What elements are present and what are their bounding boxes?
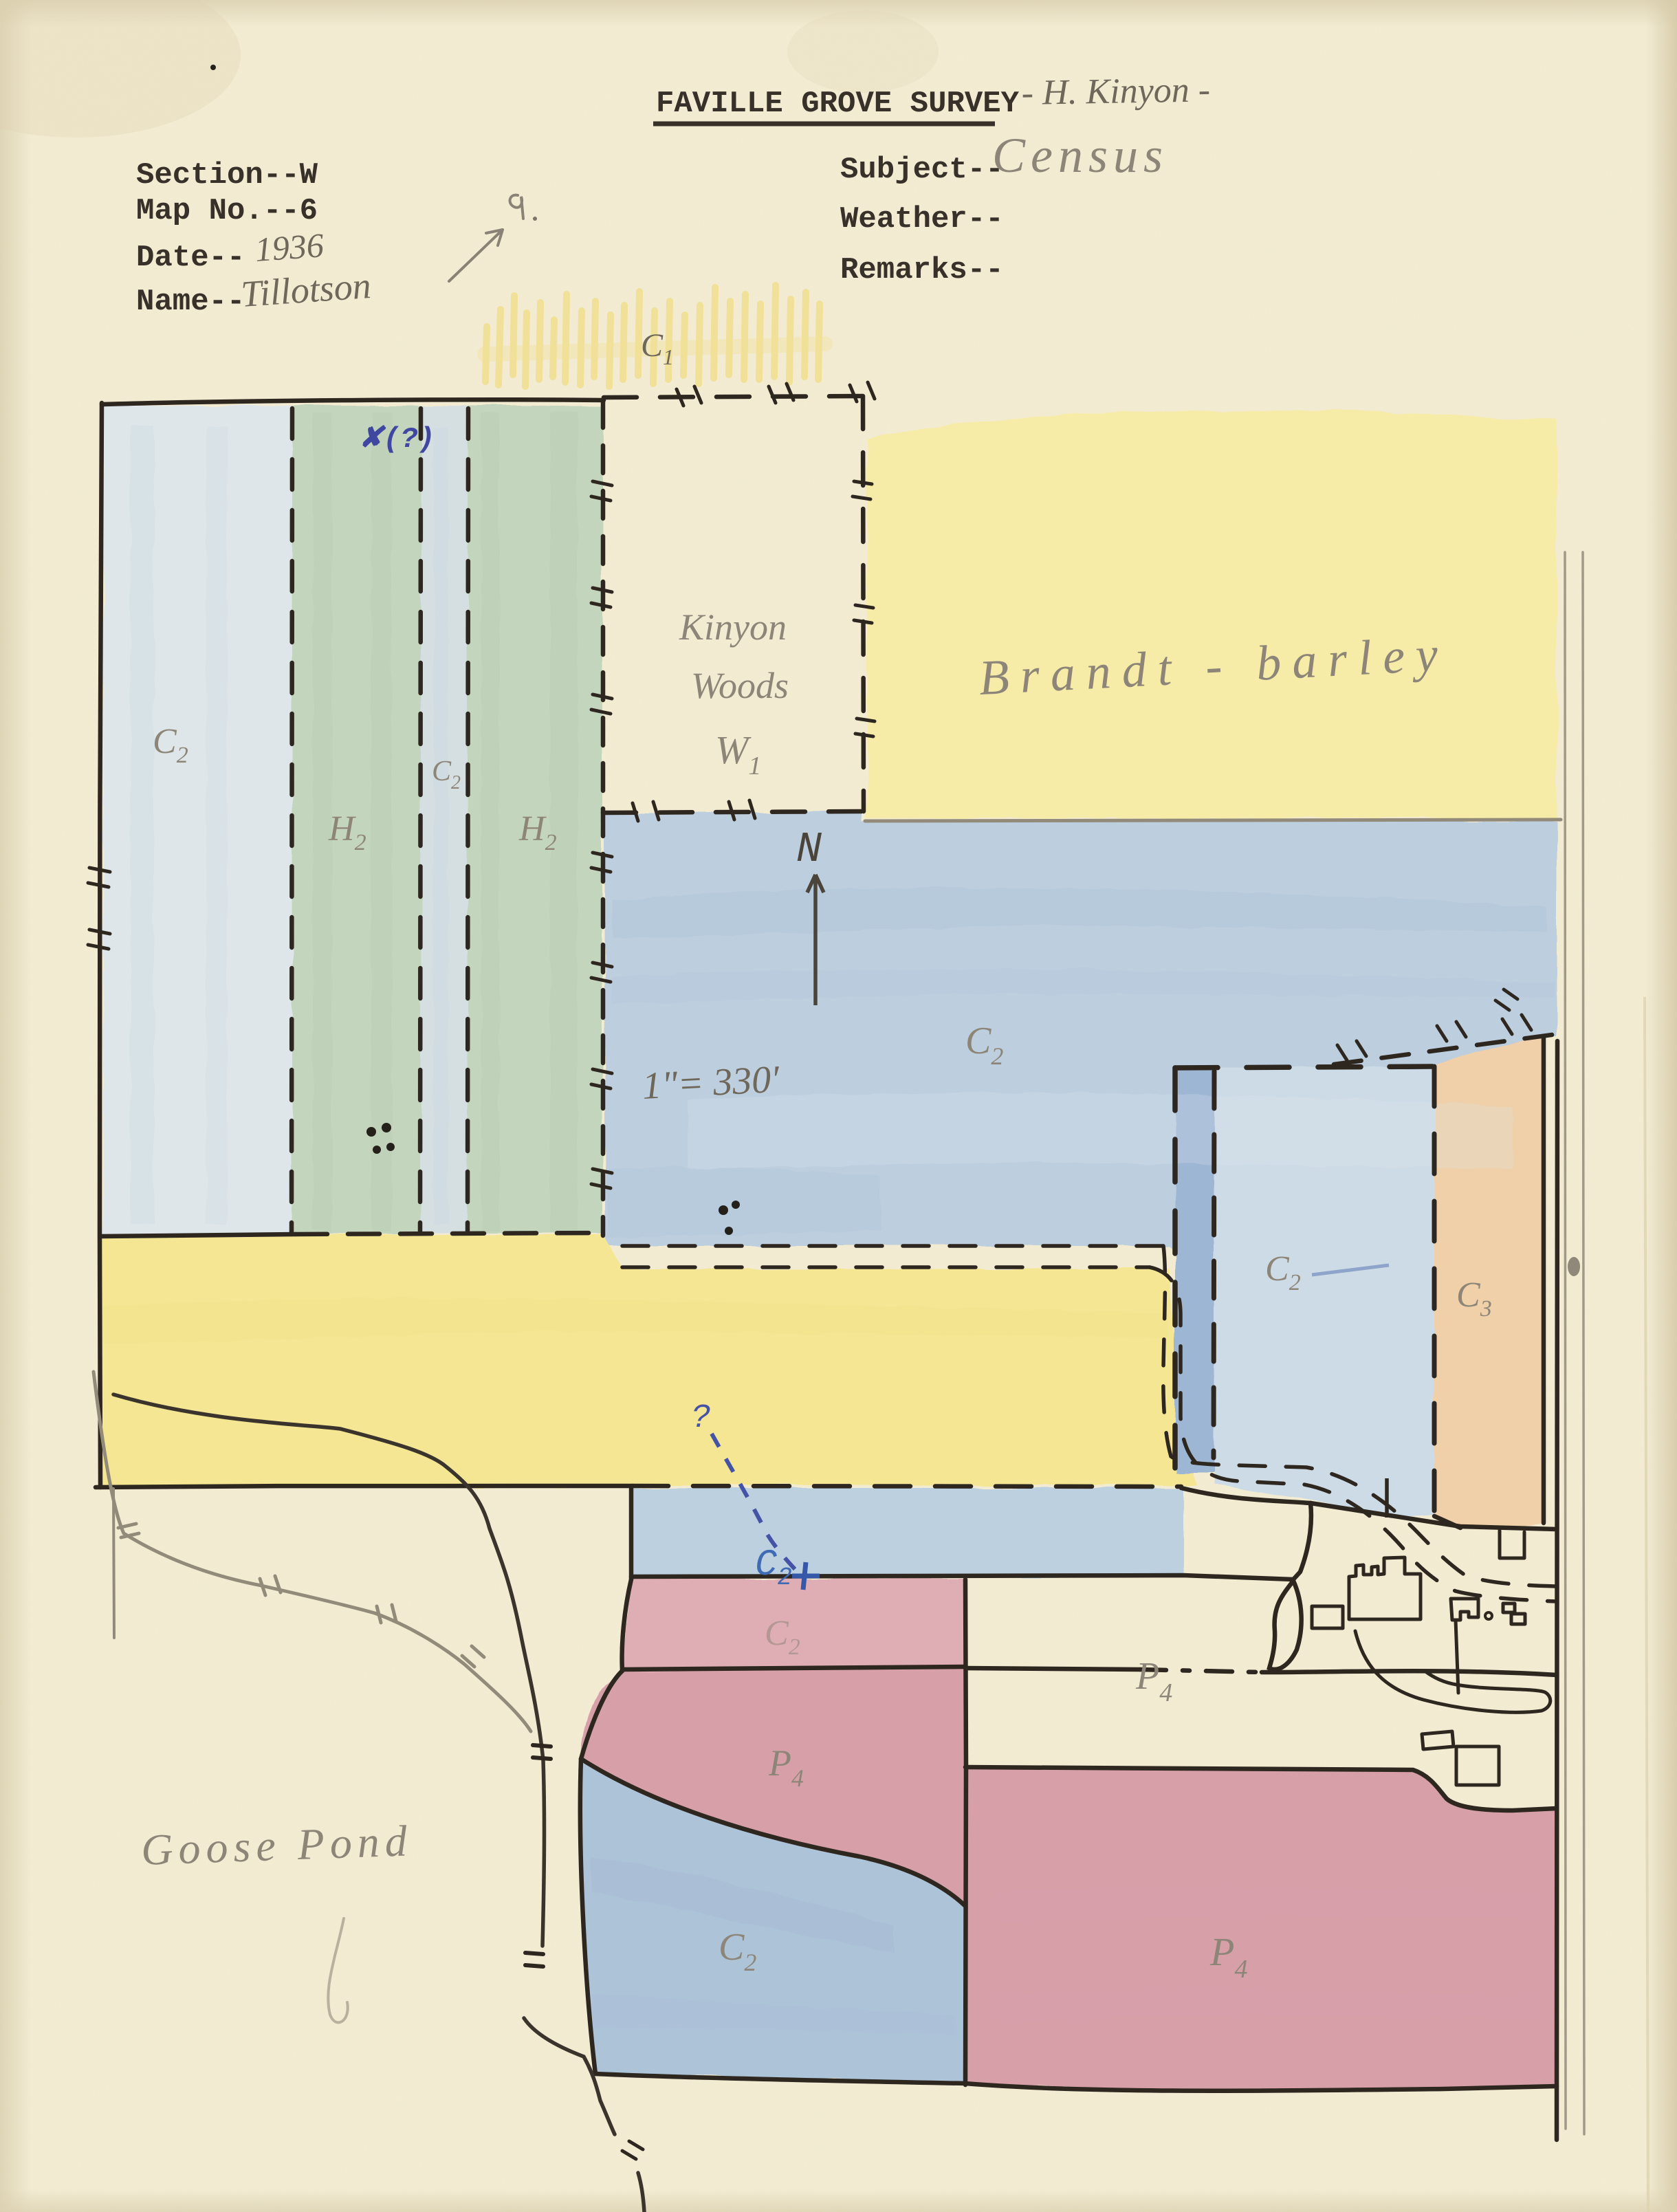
svg-text:FAVILLE GROVE SURVEY: FAVILLE GROVE SURVEY (656, 87, 1020, 121)
svg-text:Remarks--: Remarks-- (840, 253, 1004, 287)
svg-text:✘(?): ✘(?) (359, 423, 435, 456)
svg-text:Goose Pond: Goose Pond (140, 1816, 413, 1874)
svg-text:Name--: Name-- (136, 285, 245, 319)
svg-text:Map No.--6: Map No.--6 (136, 194, 318, 228)
svg-text:- H. Kinyon -: - H. Kinyon - (1021, 70, 1210, 113)
svg-text:Weather--: Weather-- (840, 202, 1004, 237)
svg-text:N: N (796, 825, 822, 874)
svg-text:Section--W: Section--W (136, 158, 318, 193)
svg-text:Kinyon: Kinyon (679, 606, 787, 648)
svg-text:1936: 1936 (254, 226, 325, 269)
svg-text:Woods: Woods (691, 665, 789, 706)
svg-text:Date--: Date-- (136, 241, 245, 275)
svg-text:1"= 330′: 1"= 330′ (641, 1058, 780, 1108)
svg-text:?: ? (691, 1400, 711, 1437)
svg-text:Census: Census (992, 128, 1168, 183)
svg-text:Subject--: Subject-- (840, 153, 1004, 187)
